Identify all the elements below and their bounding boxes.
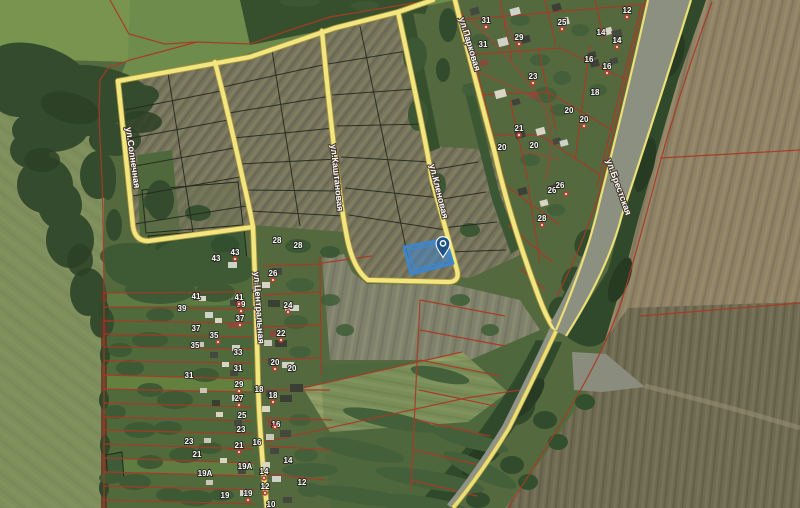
svg-text:35: 35 [191,341,200,350]
svg-text:21: 21 [193,450,202,459]
svg-text:12: 12 [623,6,632,15]
svg-text:16: 16 [603,62,612,71]
svg-text:20: 20 [271,358,280,367]
svg-text:18: 18 [255,385,264,394]
svg-text:23: 23 [237,425,246,434]
svg-text:14: 14 [597,28,606,37]
svg-text:12: 12 [261,482,270,491]
svg-text:28: 28 [273,236,282,245]
svg-text:43: 43 [212,254,221,263]
svg-text:20: 20 [498,143,507,152]
svg-text:23: 23 [529,72,538,81]
svg-text:29: 29 [235,380,244,389]
svg-text:39: 39 [178,304,187,313]
svg-text:19А: 19А [238,462,253,471]
svg-text:28: 28 [538,214,547,223]
svg-text:22: 22 [277,329,286,338]
svg-text:37: 37 [236,314,245,323]
svg-text:14: 14 [613,36,622,45]
svg-text:24: 24 [284,301,293,310]
svg-text:23: 23 [185,437,194,446]
svg-text:20: 20 [288,364,297,373]
svg-text:25: 25 [558,18,567,27]
svg-text:37: 37 [192,324,201,333]
svg-text:19: 19 [221,491,230,500]
svg-text:16: 16 [253,438,262,447]
svg-text:20: 20 [530,141,539,150]
svg-text:26: 26 [556,181,565,190]
svg-text:26: 26 [269,269,278,278]
svg-text:31: 31 [185,371,194,380]
svg-text:28: 28 [294,241,303,250]
svg-text:33: 33 [234,348,243,357]
svg-text:20: 20 [580,115,589,124]
svg-text:20: 20 [565,106,574,115]
svg-text:31: 31 [482,16,491,25]
svg-text:14: 14 [260,467,269,476]
svg-text:21: 21 [235,441,244,450]
svg-text:31: 31 [479,40,488,49]
svg-text:41: 41 [192,292,201,301]
svg-text:35: 35 [210,331,219,340]
svg-text:27: 27 [235,394,244,403]
svg-text:10: 10 [267,500,276,508]
svg-text:16: 16 [585,55,594,64]
svg-text:29: 29 [515,33,524,42]
svg-text:18: 18 [269,391,278,400]
svg-text:19А: 19А [198,469,213,478]
svg-text:14: 14 [284,456,293,465]
svg-text:25: 25 [238,411,247,420]
svg-text:12: 12 [298,478,307,487]
svg-text:43: 43 [231,248,240,257]
svg-text:18: 18 [591,88,600,97]
svg-text:31: 31 [234,364,243,373]
svg-text:19: 19 [244,489,253,498]
svg-text:21: 21 [515,124,524,133]
